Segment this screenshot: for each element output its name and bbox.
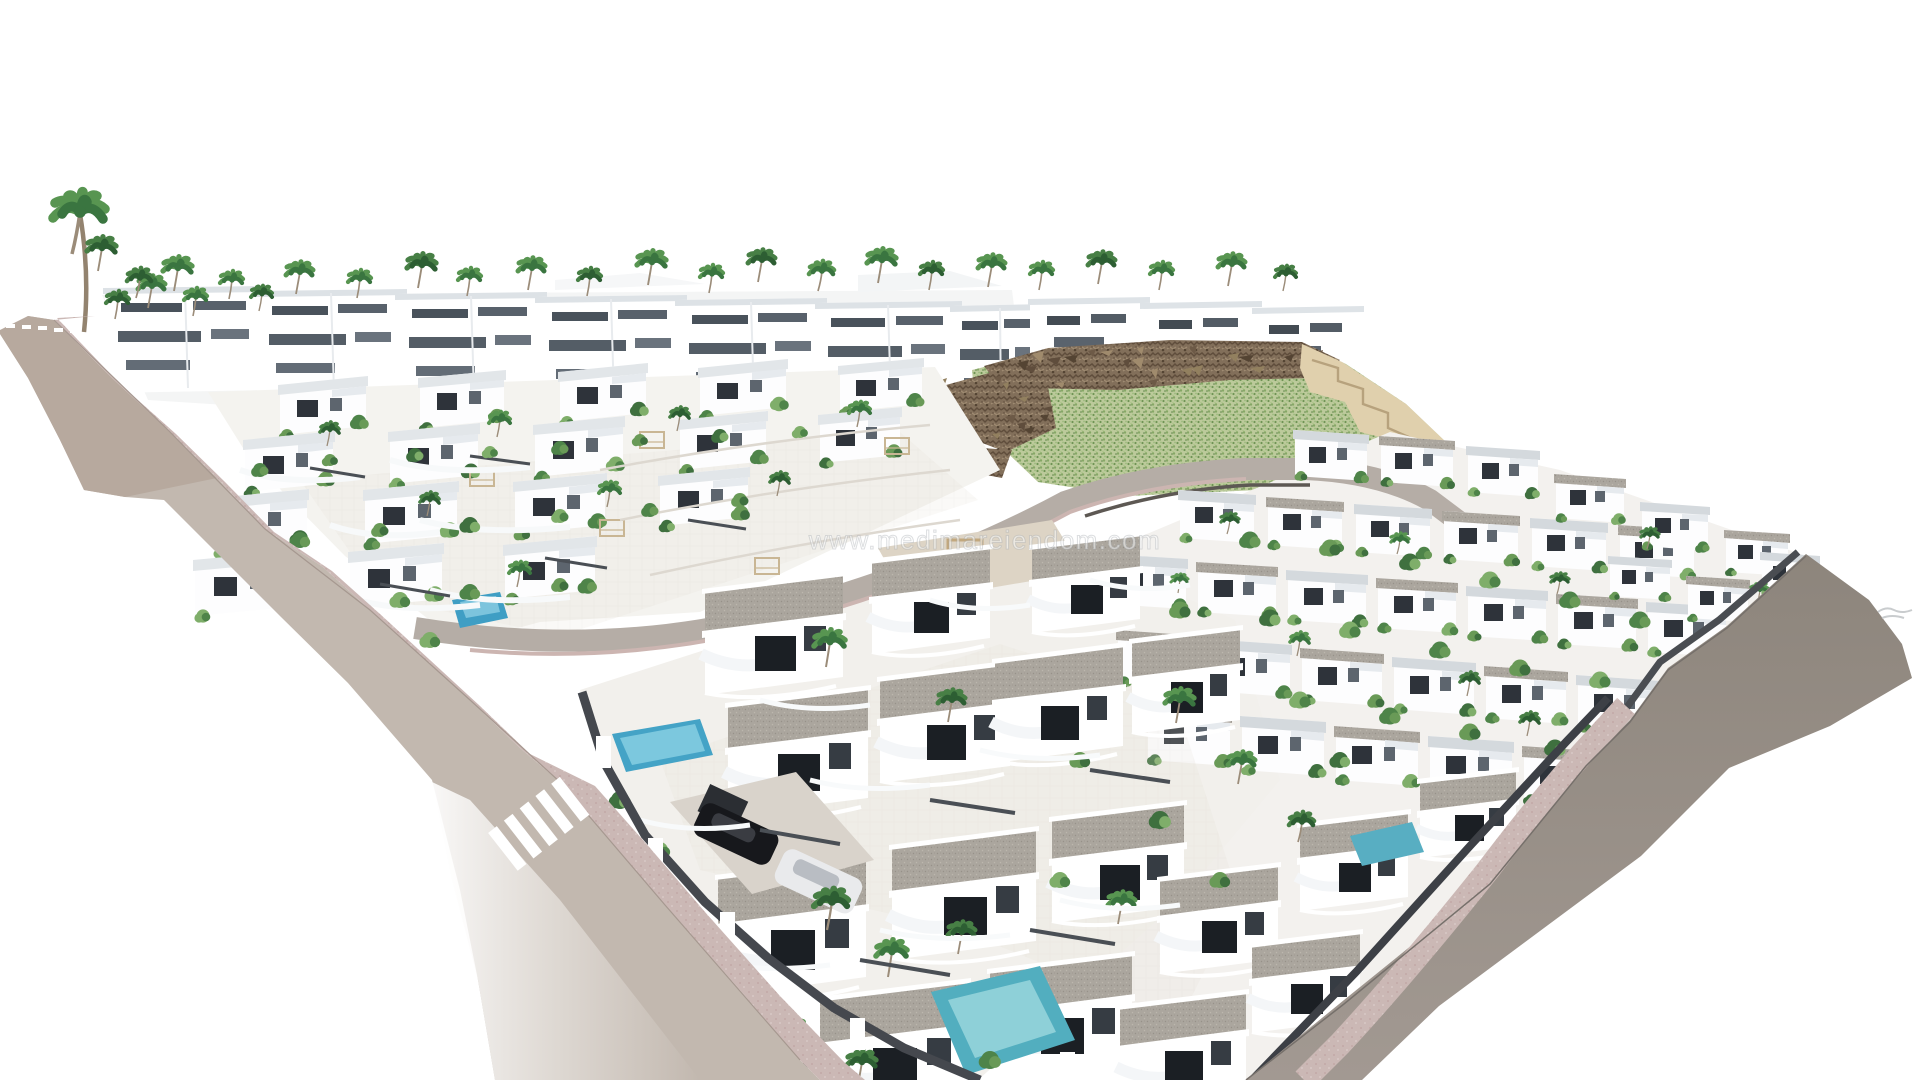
svg-text:www.medimareiendom.com: www.medimareiendom.com (808, 525, 1161, 555)
